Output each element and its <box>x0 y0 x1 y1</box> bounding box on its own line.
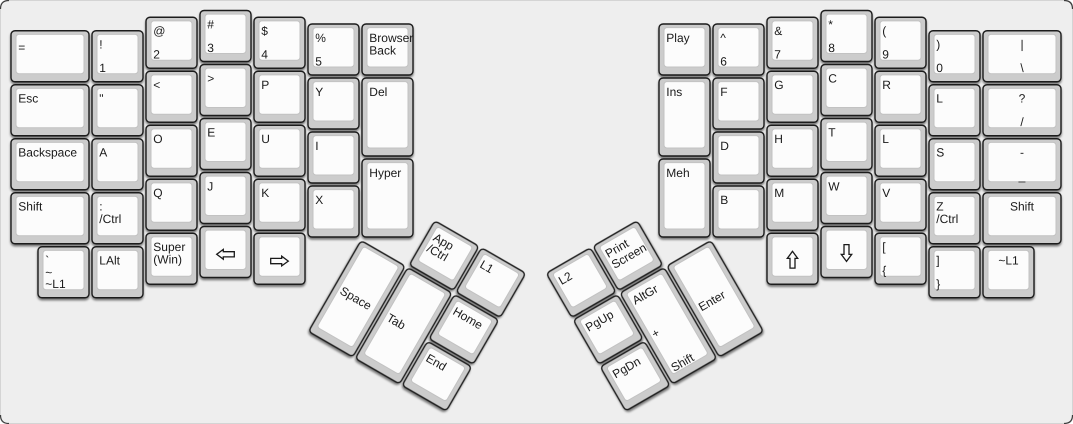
svg-text:/Ctrl: /Ctrl <box>99 212 121 226</box>
svg-text:{: { <box>882 264 886 278</box>
svg-text:!: ! <box>99 38 102 52</box>
svg-text:Esc: Esc <box>18 92 38 106</box>
svg-text:~L1: ~L1 <box>45 277 66 291</box>
svg-text:Backspace: Backspace <box>18 146 77 160</box>
svg-text:9: 9 <box>882 48 889 62</box>
svg-text:Meh: Meh <box>666 166 689 180</box>
svg-text:(: ( <box>882 24 886 38</box>
svg-text:/Ctrl: /Ctrl <box>936 212 958 226</box>
svg-text:2: 2 <box>153 48 160 62</box>
svg-text:A: A <box>99 146 107 160</box>
svg-text:O: O <box>153 132 162 146</box>
svg-text:X: X <box>315 193 323 207</box>
svg-text:T: T <box>828 125 836 139</box>
svg-text:B: B <box>720 193 728 207</box>
svg-text:}: } <box>936 277 940 291</box>
svg-text:$: $ <box>261 24 268 38</box>
svg-text:H: H <box>774 132 783 146</box>
svg-text:?: ? <box>1019 92 1026 106</box>
svg-text:Q: Q <box>153 186 162 200</box>
svg-text:L: L <box>882 132 889 146</box>
svg-text:_: _ <box>1018 169 1026 183</box>
svg-text:7: 7 <box>774 48 781 62</box>
svg-text:6: 6 <box>720 54 727 68</box>
svg-text:#: # <box>207 17 214 31</box>
svg-text:4: 4 <box>261 48 268 62</box>
svg-text:Y: Y <box>315 85 323 99</box>
svg-text:Shift: Shift <box>18 200 43 214</box>
svg-text:G: G <box>774 78 783 92</box>
svg-text:Shift: Shift <box>1010 200 1035 214</box>
svg-text:S: S <box>936 146 944 160</box>
svg-text:W: W <box>828 179 840 193</box>
svg-text:1: 1 <box>99 61 106 75</box>
svg-text:F: F <box>720 85 727 99</box>
svg-text:I: I <box>315 139 318 153</box>
svg-text:3: 3 <box>207 41 214 55</box>
svg-text:M: M <box>774 186 784 200</box>
svg-text:C: C <box>828 71 837 85</box>
svg-text:): ) <box>936 38 940 52</box>
svg-text:%: % <box>315 31 326 45</box>
svg-text:(Win): (Win) <box>153 253 182 267</box>
svg-text:8: 8 <box>828 41 835 55</box>
svg-text:V: V <box>882 186 890 200</box>
svg-text:R: R <box>882 78 891 92</box>
svg-text:0: 0 <box>936 61 943 75</box>
svg-text:&: & <box>774 24 782 38</box>
svg-text:K: K <box>261 186 269 200</box>
svg-text:*: * <box>828 17 833 31</box>
svg-text:>: > <box>207 71 214 85</box>
svg-text:Hyper: Hyper <box>369 166 401 180</box>
svg-text:<: < <box>153 78 160 92</box>
svg-text:Ins: Ins <box>666 85 682 99</box>
svg-text:=: = <box>18 40 25 54</box>
svg-text:U: U <box>261 132 270 146</box>
svg-text:P: P <box>261 78 269 92</box>
svg-text:L: L <box>936 92 943 106</box>
svg-text:": " <box>99 92 103 106</box>
svg-text:J: J <box>207 179 213 193</box>
svg-text:Play: Play <box>666 31 689 45</box>
svg-text:Del: Del <box>369 85 387 99</box>
svg-text:|: | <box>1020 38 1023 52</box>
svg-text:D: D <box>720 139 729 153</box>
svg-text:Back: Back <box>369 43 397 57</box>
svg-text:LAlt: LAlt <box>99 254 120 268</box>
svg-text:]: ] <box>936 254 939 268</box>
svg-text:5: 5 <box>315 54 322 68</box>
svg-text:@: @ <box>153 24 165 38</box>
svg-text:~L1: ~L1 <box>998 254 1019 268</box>
svg-text:E: E <box>207 125 215 139</box>
svg-text:-: - <box>1020 146 1024 160</box>
svg-text:^: ^ <box>720 31 726 45</box>
